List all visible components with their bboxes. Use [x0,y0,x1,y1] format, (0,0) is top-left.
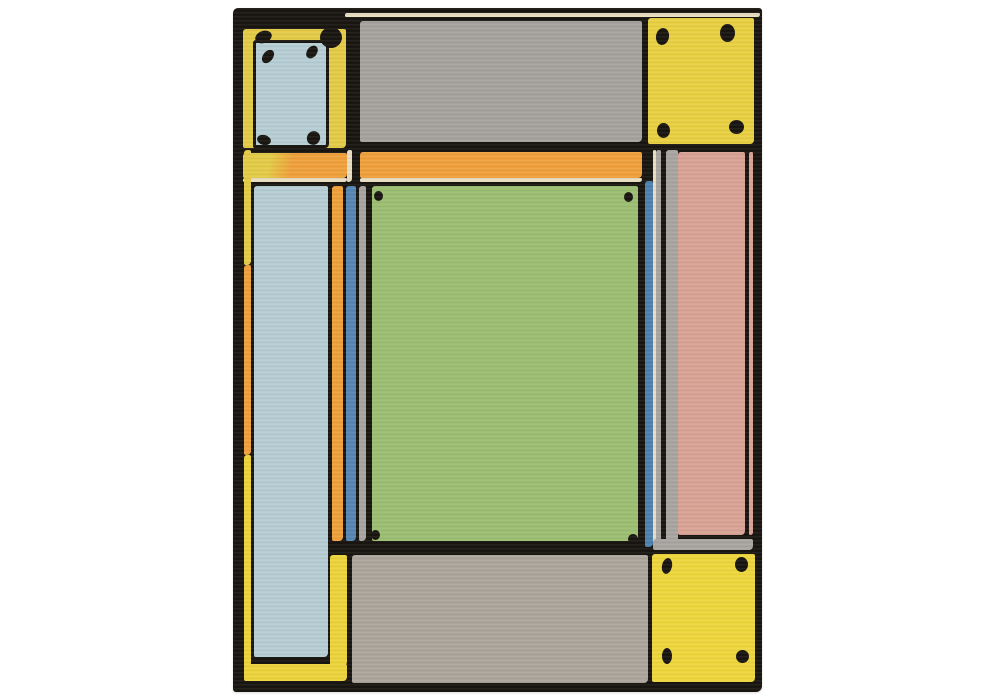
corner-dot [662,648,672,664]
frame-bottom-yellow-bar [244,664,347,681]
left-edge-strip-upper [244,150,251,265]
rug: Hand-tufted wool area rug photographed f… [233,8,762,692]
band-cream-underline-right [360,178,642,182]
frame-right-yellow-bar [330,555,347,666]
left-edge-strip-lower [244,455,251,667]
corner-dot [371,530,380,540]
left-transom-band [243,153,347,178]
corner-dot [628,534,638,544]
corner-dot [720,24,735,42]
light-blue-column [254,186,328,657]
band-cream-divider [347,150,352,182]
top-gray-panel [360,21,642,142]
orange-stripe [332,186,343,541]
pink-edge-sliver [749,152,753,535]
band-cream-underline-left [243,178,347,182]
corner-dot [320,27,342,48]
bottom-gray-panel [352,555,648,683]
corner-dot [374,191,383,201]
corner-dot [735,557,748,572]
blue-stripe [346,186,356,541]
gray-stripe [359,186,366,541]
right-gray-sliver-inner [656,150,661,548]
corner-dot [736,650,749,663]
top-cream-trim [345,13,760,17]
right-blue-stripe [645,181,653,547]
right-gray-sliver-outer [666,150,678,548]
corner-dot [657,123,670,138]
under-pink-gray-strip [653,539,753,550]
right-transom-band [360,152,642,178]
green-field-panel [372,186,638,541]
corner-dot [729,120,744,134]
corner-dot [624,192,633,202]
photo-stage: Hand-tufted wool area rug photographed f… [0,0,1000,700]
pink-panel [678,152,745,535]
left-edge-strip-middle [244,265,251,455]
